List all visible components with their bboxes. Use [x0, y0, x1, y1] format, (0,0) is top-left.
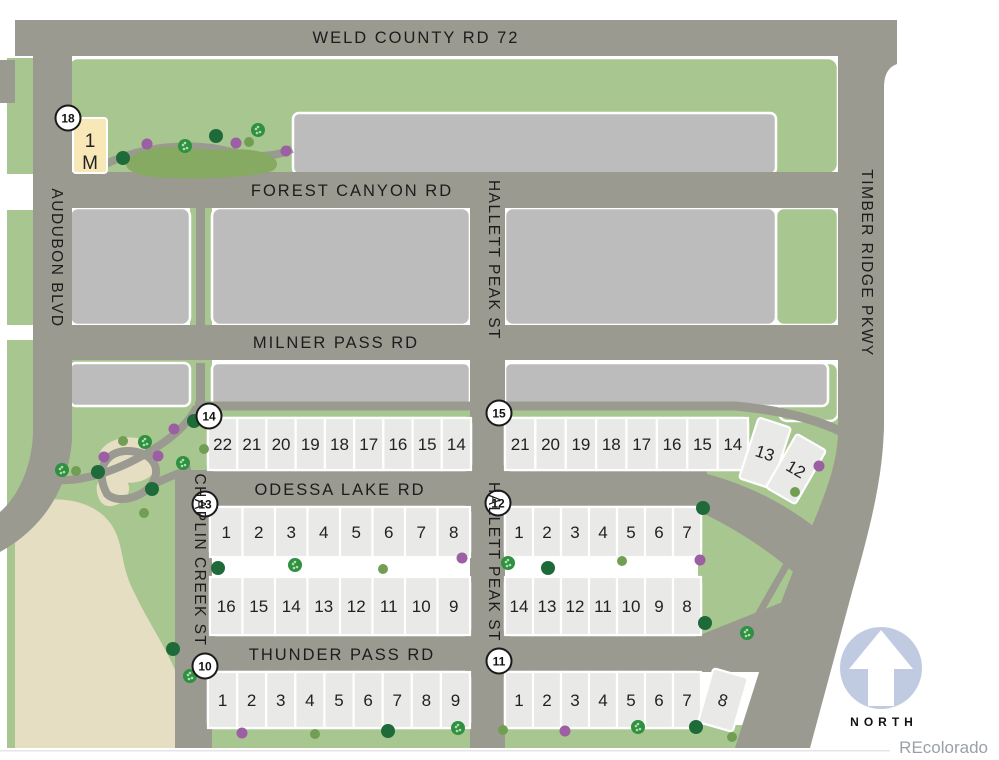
tree-speckle — [635, 725, 638, 728]
tree-speckle — [63, 471, 66, 474]
lot-number: 2 — [247, 691, 256, 710]
tree-speckle — [455, 726, 458, 729]
tree-speckle — [184, 464, 187, 467]
parcel-f — [505, 363, 828, 406]
subdivision-site-map: 2221201918171615142120191817161514131212… — [0, 0, 999, 760]
label-hallett-lower: HALLETT PEAK ST — [485, 482, 502, 642]
lot-number: 4 — [319, 523, 328, 542]
tree-speckle — [744, 631, 747, 634]
label-hallett-upper: HALLETT PEAK ST — [485, 180, 502, 340]
tree-dark-icon — [145, 482, 159, 496]
tree-speckle — [456, 730, 459, 733]
lot-number: 14 — [447, 435, 466, 454]
lot-number: 16 — [217, 597, 236, 616]
tree-dark-icon — [116, 151, 130, 165]
watermark: REcolorado — [899, 738, 988, 757]
lot-number: 5 — [334, 691, 343, 710]
lot-number: 2 — [542, 691, 551, 710]
tree-purple-icon — [695, 555, 706, 566]
block-badge-number: 11 — [493, 655, 506, 669]
lot-number: 7 — [682, 691, 691, 710]
tree-speckled-icon — [251, 123, 265, 137]
tree-speckle — [189, 672, 192, 675]
lot-number: 12 — [566, 597, 585, 616]
lot-number: 4 — [305, 691, 314, 710]
lot-number: 21 — [242, 435, 261, 454]
tree-speckle — [639, 728, 642, 731]
lot-number: 15 — [693, 435, 712, 454]
label-weld-county: WELD COUNTY RD 72 — [313, 29, 520, 47]
tree-sage-icon — [244, 137, 254, 147]
lot-number: 6 — [363, 691, 372, 710]
tree-sage-icon — [378, 564, 388, 574]
lot-number: 14 — [723, 435, 742, 454]
lot-number: 5 — [352, 523, 361, 542]
lot-number: 10 — [412, 597, 431, 616]
tree-speckle — [191, 677, 194, 680]
tree-speckle — [182, 459, 185, 462]
site-map-page: 2221201918171615142120191817161514131212… — [0, 0, 999, 760]
tree-speckle — [180, 461, 183, 464]
tree-purple-icon — [814, 461, 825, 472]
parcel-a — [70, 208, 190, 325]
lot-number: 9 — [451, 691, 460, 710]
tree-speckled-icon — [451, 721, 465, 735]
tree-speckle — [293, 567, 296, 570]
lot-number: 18 — [602, 435, 621, 454]
lot-number: 9 — [654, 597, 663, 616]
tree-sage-icon — [727, 732, 737, 742]
tree-speckle — [181, 465, 184, 468]
tree-speckled-icon — [631, 720, 645, 734]
tree-speckle — [259, 131, 262, 134]
lot-block-11-8: 8 — [698, 668, 748, 732]
tree-speckled-icon — [176, 456, 190, 470]
tree-speckled-icon — [288, 558, 302, 572]
lot-number: 11 — [380, 597, 398, 616]
tree-speckle — [143, 444, 146, 447]
lot-number: 6 — [654, 523, 663, 542]
block-badge-number: 14 — [202, 410, 216, 424]
tree-speckle — [746, 629, 749, 632]
tree-speckle — [187, 674, 190, 677]
tree-speckled-icon — [740, 626, 754, 640]
tree-speckle — [257, 126, 260, 129]
tree-speckle — [292, 563, 295, 566]
tree-speckled-icon — [55, 463, 69, 477]
lot-number: 19 — [571, 435, 590, 454]
north-label: NORTH — [850, 715, 918, 729]
tree-speckle — [296, 566, 299, 569]
lot-number: 13 — [538, 597, 557, 616]
lot-number: 3 — [276, 691, 285, 710]
lot-number: 14 — [282, 597, 301, 616]
tree-speckle — [507, 559, 510, 562]
lot-number: 1 — [218, 691, 227, 710]
tree-sage-icon — [199, 444, 209, 454]
tree-speckle — [59, 468, 62, 471]
tree-speckle — [184, 142, 187, 145]
lot-number: 6 — [384, 523, 393, 542]
label-thunder-pass: THUNDER PASS RD — [249, 646, 435, 664]
lot-number: 17 — [632, 435, 651, 454]
lot-number: 1 — [222, 523, 231, 542]
road-milner-pass — [33, 325, 838, 360]
lot-number: 16 — [663, 435, 682, 454]
block-badge-number: 10 — [198, 660, 212, 674]
tree-dark-icon — [91, 465, 105, 479]
tree-sage-icon — [71, 466, 81, 476]
label-chaplin: CHAPLIN CREEK ST — [191, 473, 208, 646]
lot-number: 21 — [511, 435, 530, 454]
tree-purple-icon — [457, 553, 468, 564]
parcel-north — [293, 113, 776, 174]
tree-speckle — [60, 472, 63, 475]
lot-number: 1 — [514, 691, 523, 710]
model-lot-number: 1 — [85, 131, 96, 152]
tree-purple-icon — [169, 424, 180, 435]
tree-dark-icon — [166, 642, 180, 656]
tree-speckle — [745, 635, 748, 638]
tree-sage-icon — [617, 556, 627, 566]
lot-number: 8 — [422, 691, 431, 710]
tree-dark-icon — [696, 501, 710, 515]
tree-speckle — [457, 724, 460, 727]
lot-number: 5 — [626, 691, 635, 710]
tree-speckle — [509, 564, 512, 567]
path-between-parcels-1 — [196, 206, 205, 327]
tree-speckle — [505, 561, 508, 564]
lot-number: 4 — [598, 523, 607, 542]
lot-number: 8 — [449, 523, 458, 542]
tree-speckle — [506, 565, 509, 568]
tree-speckle — [144, 438, 147, 441]
lot-number: 6 — [654, 691, 663, 710]
lot-number: 3 — [570, 523, 579, 542]
tree-sage-icon — [790, 487, 800, 497]
lot-number: 3 — [287, 523, 296, 542]
lot-number: 22 — [213, 435, 232, 454]
tree-dark-icon — [689, 720, 703, 734]
tree-purple-icon — [142, 139, 153, 150]
label-odessa-lake: ODESSA LAKE RD — [254, 481, 425, 499]
lot-number: 12 — [347, 597, 366, 616]
tree-speckle — [636, 729, 639, 732]
tree-speckled-icon — [501, 556, 515, 570]
tree-speckle — [188, 678, 191, 681]
parcel-b — [212, 208, 470, 325]
tree-dark-icon — [381, 724, 395, 738]
label-forest-canyon: FOREST CANYON RD — [251, 182, 453, 200]
tree-dark-icon — [209, 129, 223, 143]
tree-speckle — [146, 443, 149, 446]
tree-speckle — [183, 148, 186, 151]
tree-dark-icon — [698, 616, 712, 630]
parcel-d — [70, 363, 190, 406]
lot-number: 15 — [249, 597, 268, 616]
tree-speckle — [748, 634, 751, 637]
tree-purple-icon — [99, 452, 110, 463]
lot-number: 7 — [392, 691, 401, 710]
parcel-c — [505, 208, 776, 325]
tree-speckle — [255, 128, 258, 131]
lot-number: 15 — [418, 435, 437, 454]
lot-number: 2 — [542, 523, 551, 542]
lot-number: 20 — [541, 435, 560, 454]
tree-speckled-icon — [138, 435, 152, 449]
lot-number: 10 — [622, 597, 641, 616]
tree-speckle — [182, 144, 185, 147]
path-between-parcels-2 — [196, 363, 205, 407]
tree-speckle — [256, 132, 259, 135]
tree-speckle — [61, 466, 64, 469]
tree-sage-icon — [118, 436, 128, 446]
label-milner-pass: MILNER PASS RD — [253, 334, 419, 352]
tree-purple-icon — [153, 451, 164, 462]
lot-number: 7 — [417, 523, 426, 542]
label-audubon: AUDUBON BLVD — [48, 188, 65, 327]
lot-number: 4 — [598, 691, 607, 710]
lot-number: 2 — [254, 523, 263, 542]
lot-number: 11 — [594, 597, 612, 616]
lot-number: 1 — [514, 523, 523, 542]
tree-purple-icon — [231, 138, 242, 149]
lot-number: 17 — [359, 435, 378, 454]
lot-number: 5 — [626, 523, 635, 542]
lot-number: 16 — [388, 435, 407, 454]
lot-number: 3 — [570, 691, 579, 710]
block-badge-number: 15 — [492, 407, 506, 421]
lot-number: 18 — [330, 435, 349, 454]
lot-number: 7 — [682, 523, 691, 542]
tree-speckle — [459, 729, 462, 732]
tree-speckle — [142, 440, 145, 443]
green-strip-west-2 — [7, 210, 33, 325]
tree-dark-icon — [541, 561, 555, 575]
tree-purple-icon — [560, 726, 571, 737]
block-badge-number: 18 — [61, 112, 75, 126]
lot-number: 20 — [272, 435, 291, 454]
tree-sage-icon — [139, 508, 149, 518]
pond-north-band — [126, 147, 277, 179]
lot-number: 19 — [301, 435, 320, 454]
north-arrow: NORTH — [840, 627, 922, 729]
tree-speckle — [186, 147, 189, 150]
green-band-east-1 — [776, 208, 838, 325]
tree-sage-icon — [498, 725, 508, 735]
bottom-hairline — [0, 750, 890, 752]
tree-sage-icon — [310, 729, 320, 739]
parcel-e — [212, 363, 470, 406]
lot-number: 8 — [682, 597, 691, 616]
road-stub-west — [0, 60, 15, 103]
tree-dark-icon — [211, 561, 225, 575]
lot-number: 13 — [314, 597, 333, 616]
tree-speckled-icon — [178, 139, 192, 153]
lot-number: 9 — [449, 597, 458, 616]
tree-speckle — [637, 723, 640, 726]
model-lot-letter: M — [82, 153, 98, 174]
tree-purple-icon — [281, 146, 292, 157]
lot-number: 14 — [510, 597, 529, 616]
tree-purple-icon — [237, 728, 248, 739]
tree-speckle — [294, 561, 297, 564]
label-timber-ridge: TIMBER RIDGE PKWY — [858, 169, 875, 356]
